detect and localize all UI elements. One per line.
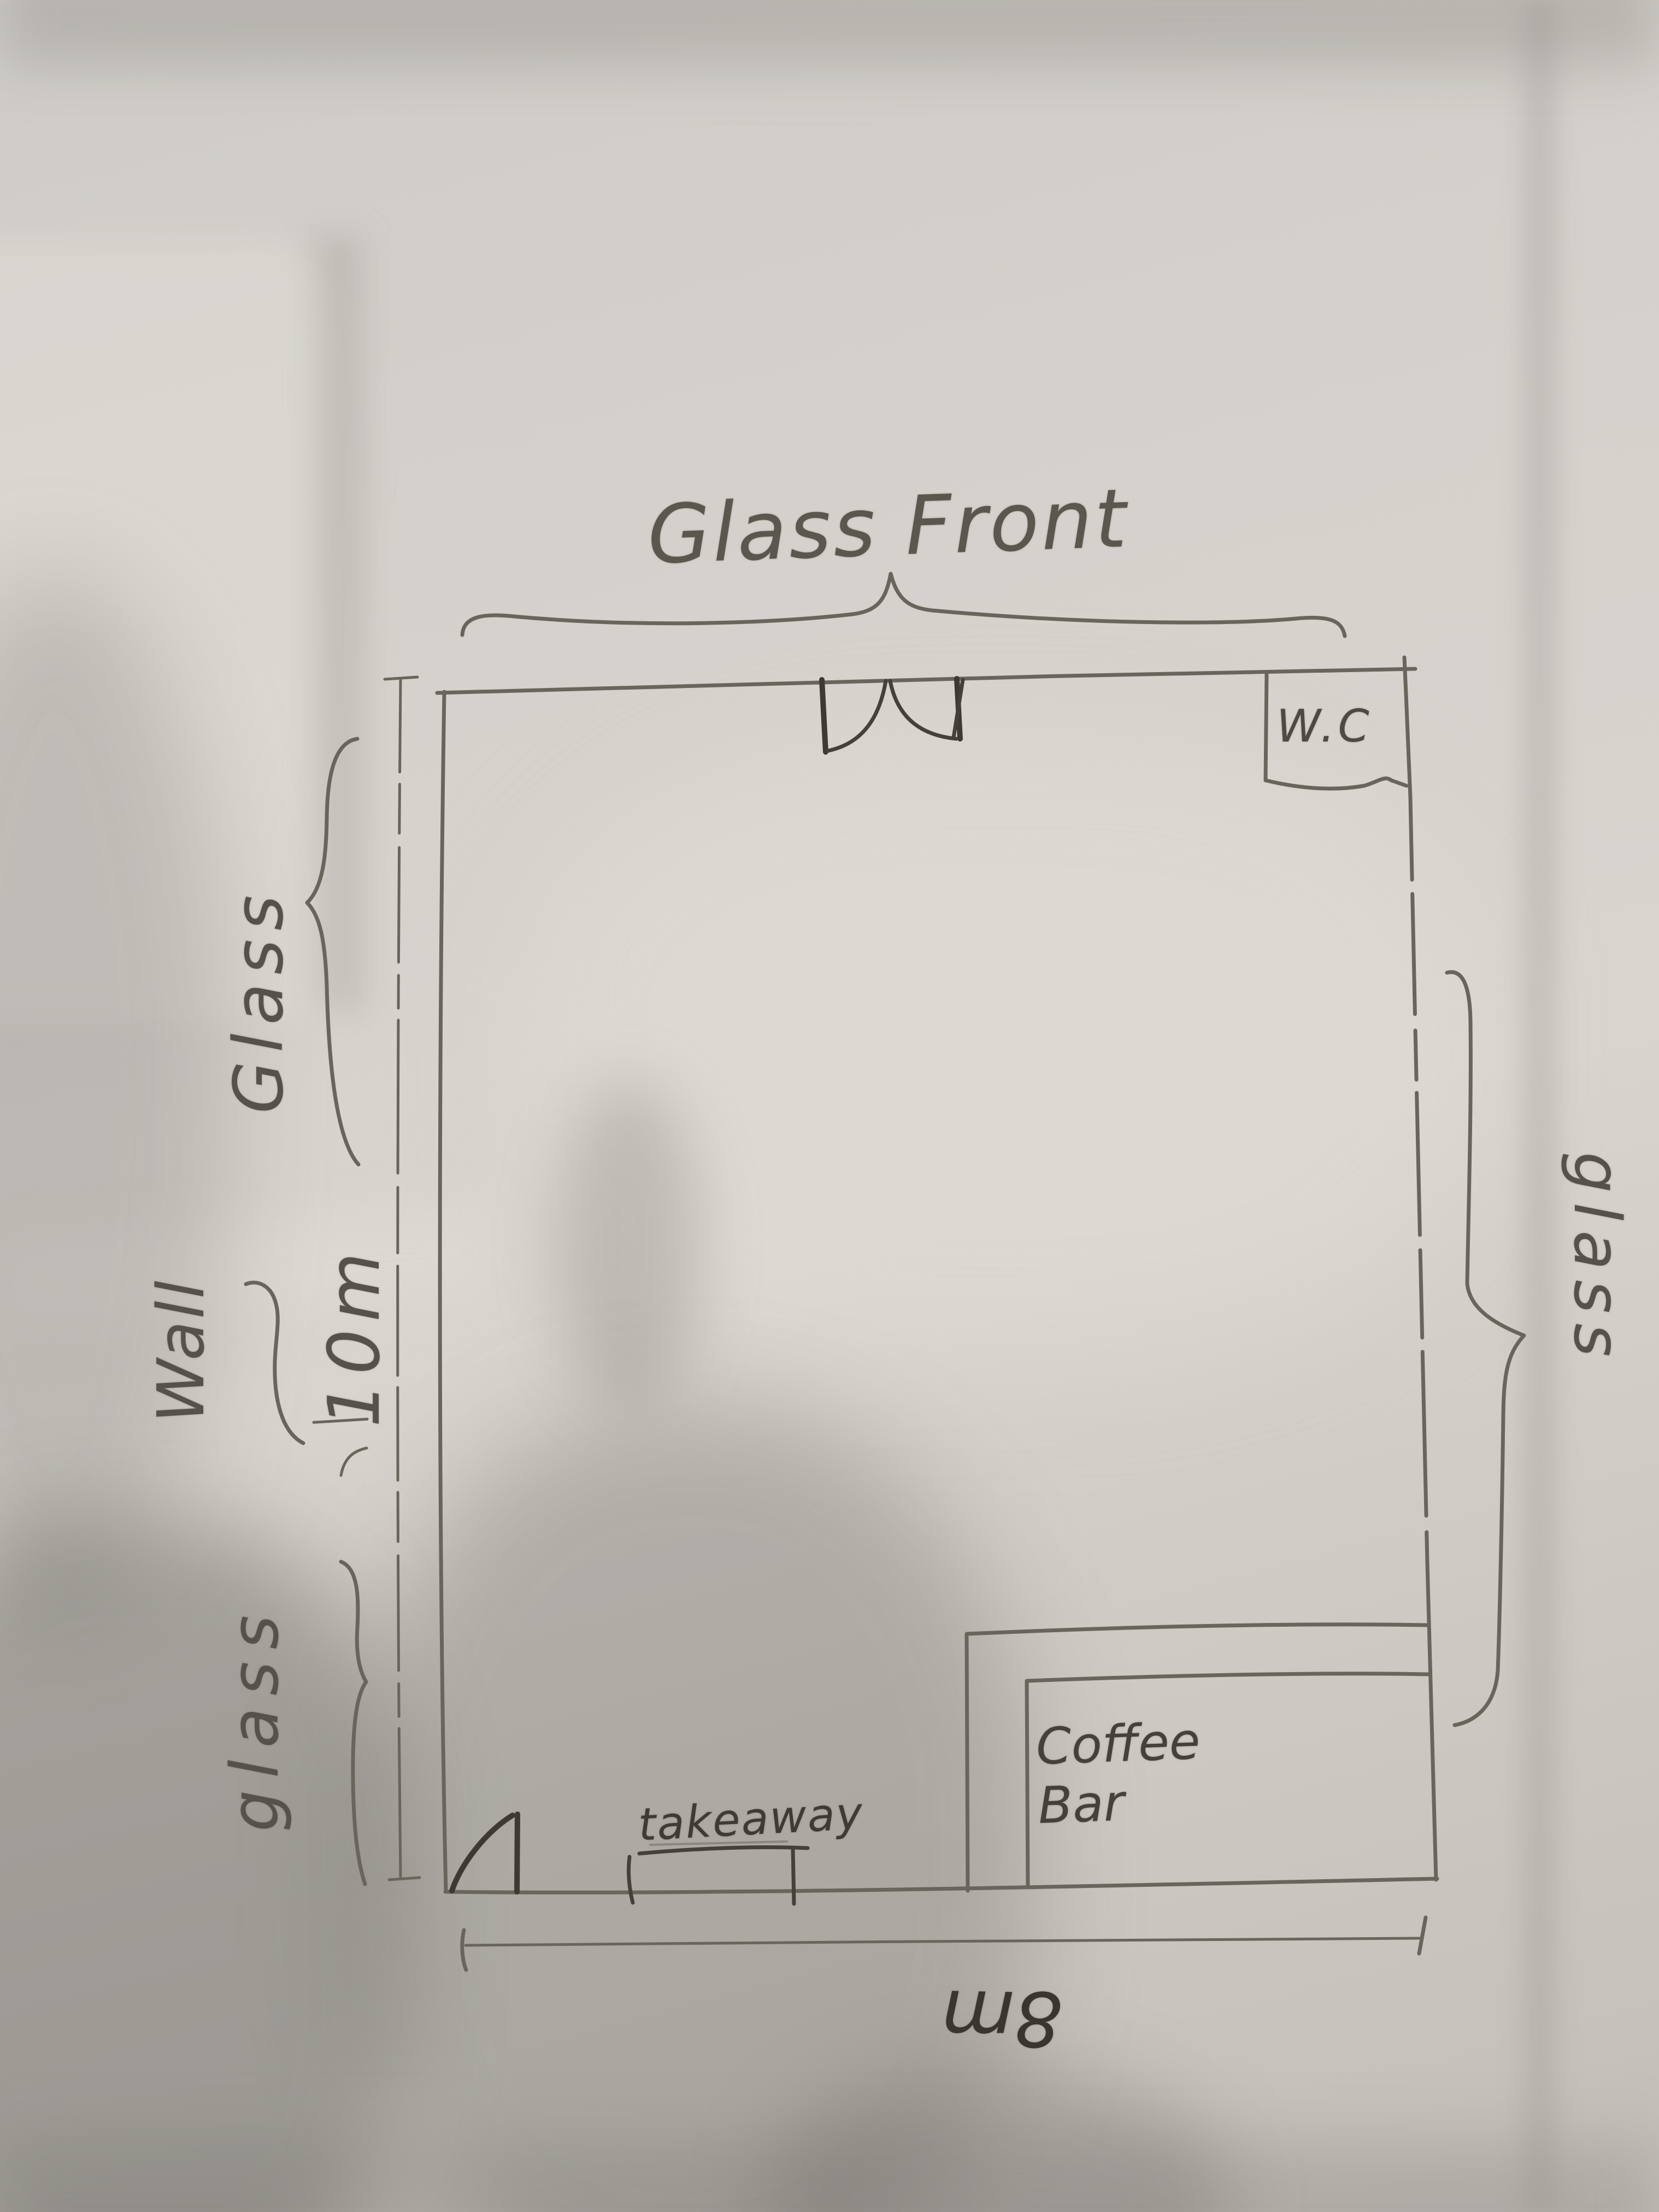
label-dimension-8m: 8m [940,1973,1063,2063]
label-coffee-bar-line2: Bar [1037,1771,1203,1836]
wall-left [440,692,446,1892]
wall-right-mid [1410,798,1427,1563]
dim-line-bottom-tick-right [1419,1917,1426,1954]
side-door-arc [452,1815,513,1891]
entrance-door-left-arc [828,681,886,751]
brace-glass-lower-left [341,1562,366,1884]
dim-line-left [398,679,401,1879]
brace-dim-left [246,1283,303,1443]
side-door-leaf [517,1814,517,1892]
label-glass-front: Glass Front [646,472,1130,583]
brace-glass-front [462,574,1345,636]
wall-bottom [445,1879,1437,1892]
wall-right-lower [1427,1563,1436,1880]
dim-line-left-tick-top [385,677,417,679]
label-wc: W.C [1276,701,1373,752]
entrance-door-left-leaf [822,680,826,752]
dim-line-bottom [466,1938,1422,1945]
takeaway-bracket-right-tick [793,1848,794,1904]
brace-glass-upper-left [307,739,358,1164]
takeaway-bracket-left-tick [628,1857,633,1903]
label-dimension-10m: 10m [313,1245,396,1427]
dim-left-hook [341,1448,367,1475]
wall-top [437,669,1415,693]
photo-of-floor-plan-sketch: Glass Front W.C glass Glass Wall 10m gla… [0,0,1659,2212]
label-coffee-bar-line1: Coffee [1035,1712,1201,1776]
dim-line-left-tick-bottom [389,1878,420,1880]
brace-glass-right [1447,972,1524,1725]
label-glass-lower-left: glass [217,1603,293,1832]
wall-right-upper [1404,657,1410,798]
entrance-door-right-arc [890,681,956,739]
label-glass-right: glass [1560,1152,1635,1367]
label-glass-upper-left: Glass [220,886,298,1114]
dim-line-bottom-tick-left [462,1930,466,1970]
label-wall: Wall [143,1279,219,1423]
label-coffee-bar: Coffee Bar [1035,1712,1203,1836]
